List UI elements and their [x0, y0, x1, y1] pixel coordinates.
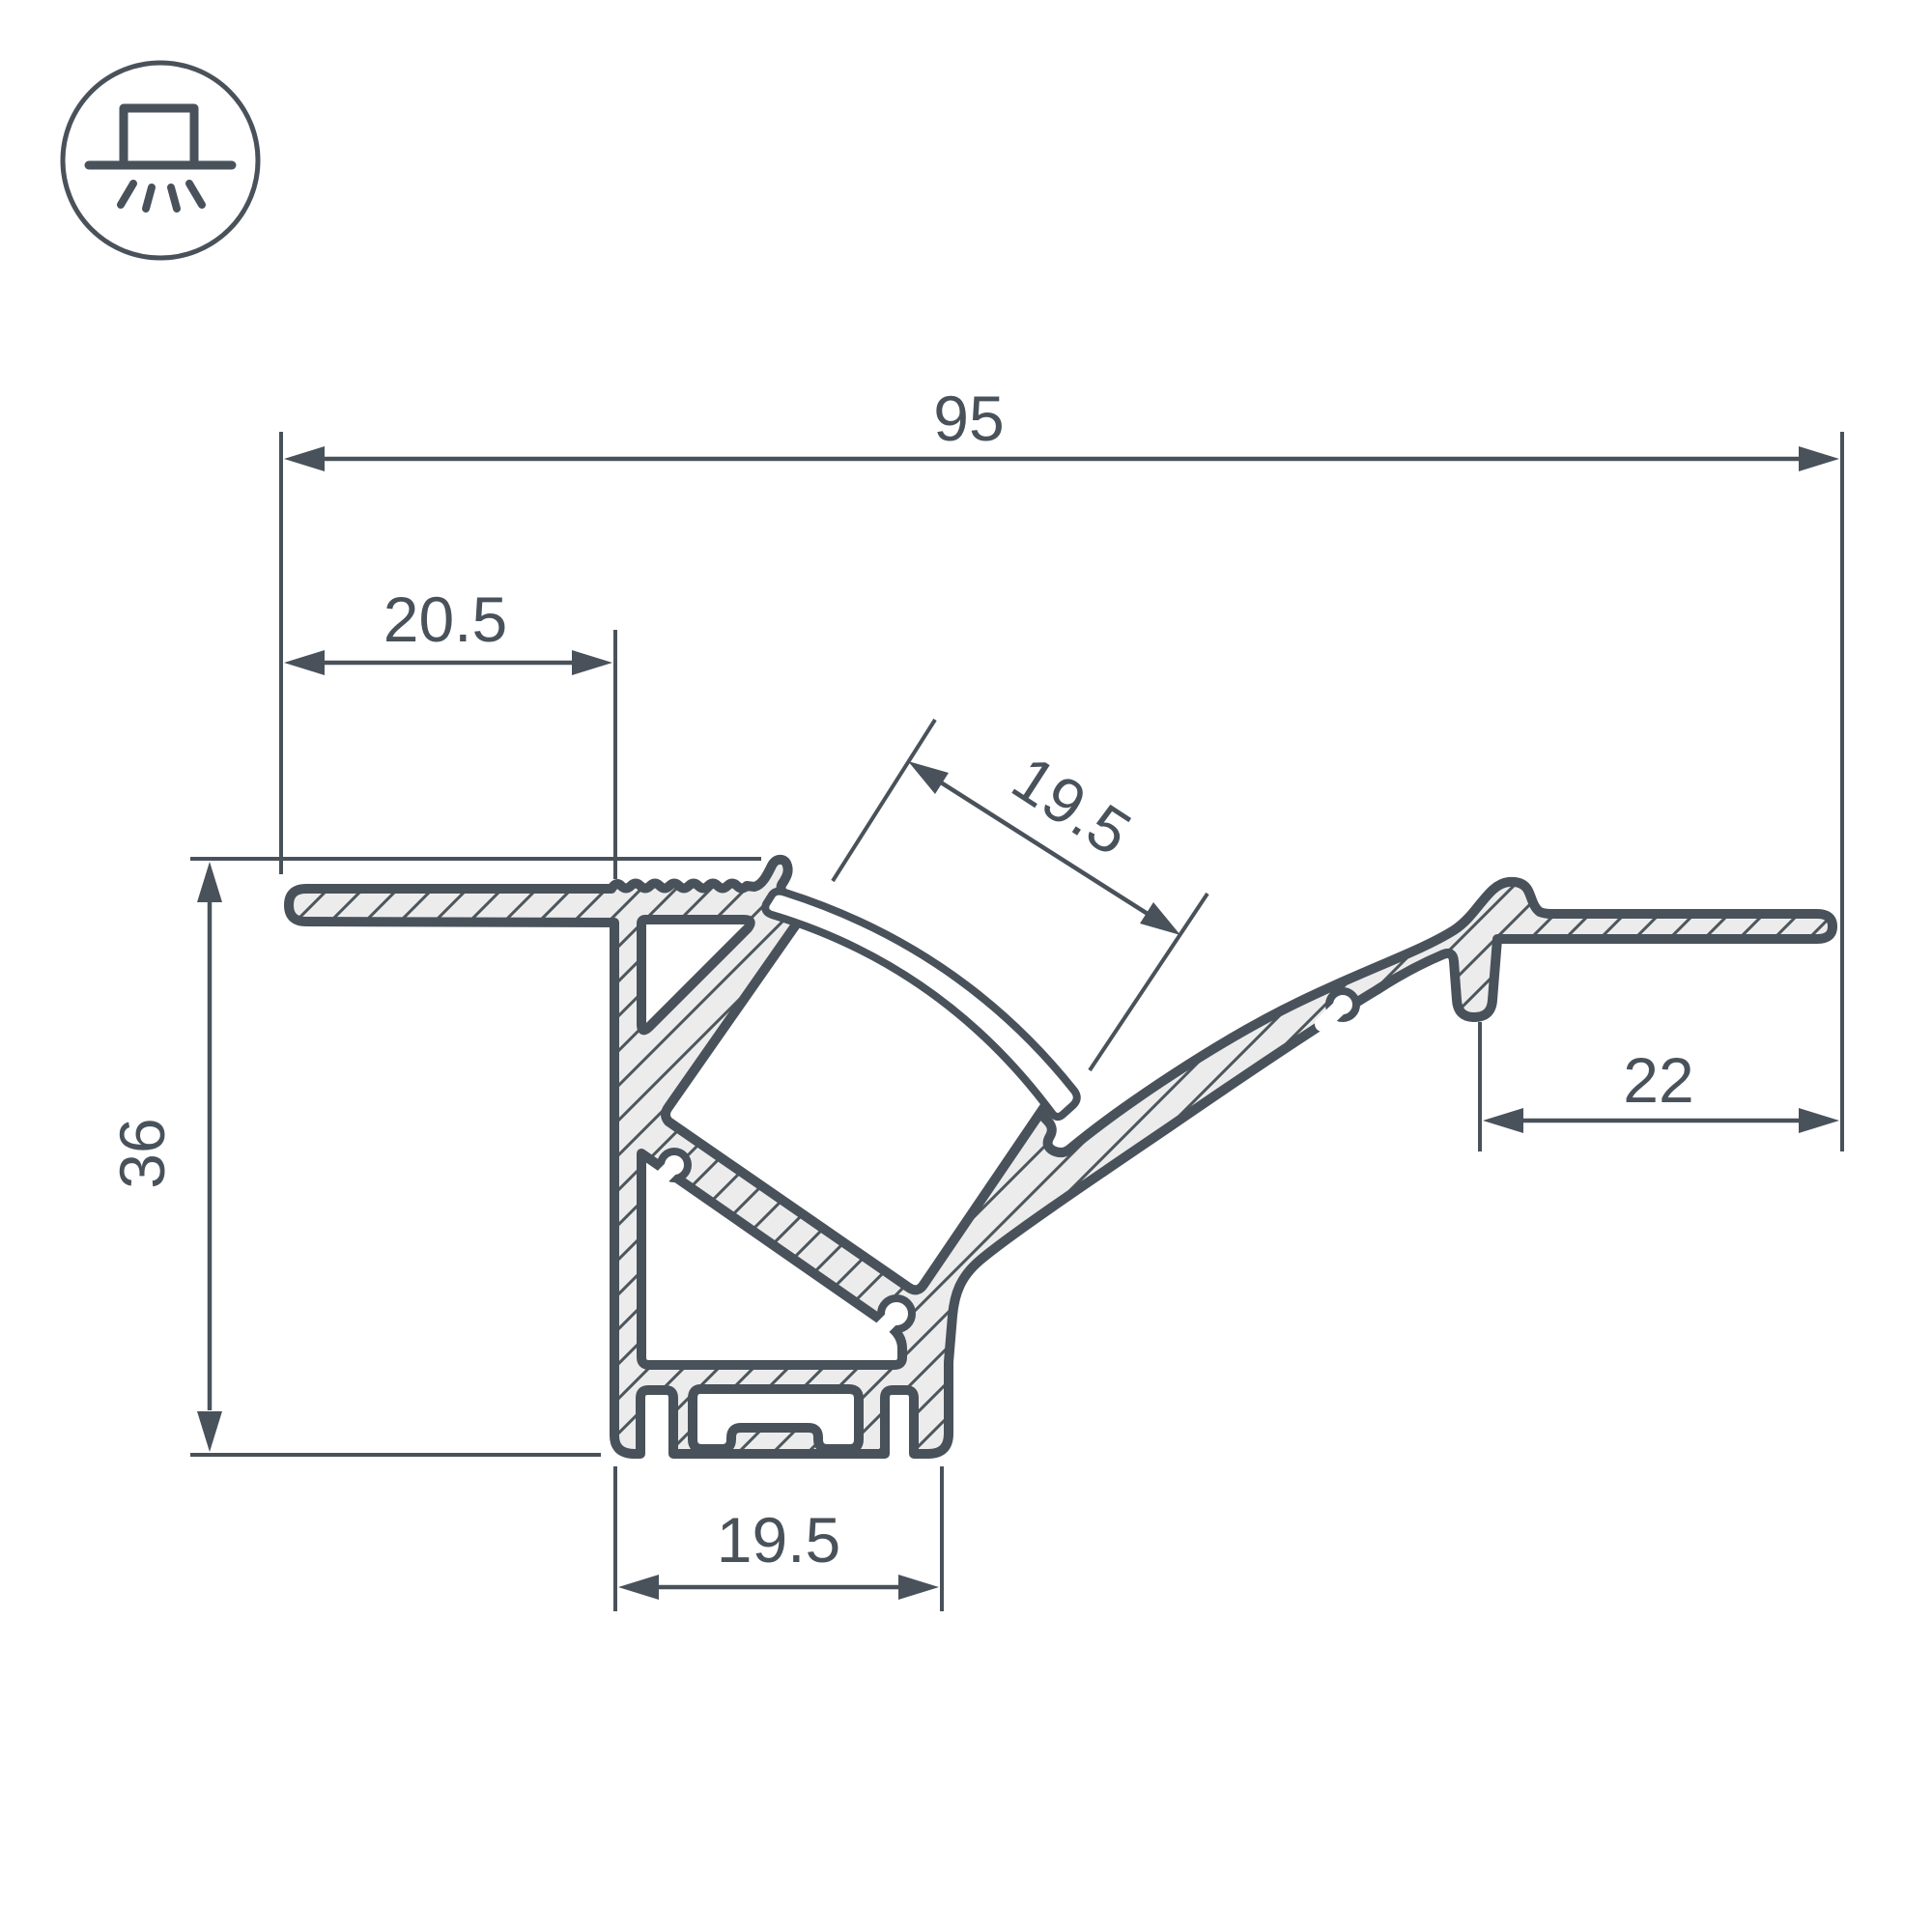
dim-diffuser-opening-label: 19.5	[1001, 742, 1144, 869]
dim-arrow	[1799, 1108, 1839, 1133]
clip-curl	[874, 1298, 912, 1336]
icon-light-rays	[121, 184, 202, 209]
diffuser-lens	[765, 892, 1077, 1117]
dim-overall-height-label: 36	[106, 1118, 178, 1188]
dim-arrow	[284, 650, 325, 675]
dim-overall-width: 95	[284, 383, 1839, 471]
dim-base-width-label: 19.5	[717, 1504, 840, 1576]
dim-overall-height: 36	[106, 862, 222, 1452]
dim-right-flange-label: 22	[1623, 1044, 1693, 1116]
icon-circle	[63, 63, 258, 258]
dim-arrow	[1140, 902, 1180, 935]
light-ray	[189, 184, 202, 205]
dim-left-flange: 20.5	[284, 583, 612, 675]
icon-fixture-box	[124, 108, 194, 165]
light-ray	[171, 187, 177, 209]
dim-base-width: 19.5	[618, 1504, 939, 1600]
light-ray	[121, 184, 133, 205]
light-ray	[146, 187, 152, 209]
dim-arrow	[908, 761, 949, 794]
dim-arrow	[572, 650, 612, 675]
profile-technical-drawing: 95 20.5 19.5 36 22	[0, 0, 1932, 1932]
recessed-light-icon	[63, 63, 258, 258]
extension-line	[833, 720, 935, 881]
dim-overall-width-label: 95	[933, 383, 1004, 454]
dim-arrow	[197, 862, 222, 902]
dim-arrow	[284, 446, 325, 471]
profile-body	[289, 860, 1833, 1454]
dim-diffuser-opening: 19.5	[908, 742, 1180, 935]
dim-left-flange-label: 20.5	[384, 583, 507, 655]
profile-cross-section	[289, 860, 1833, 1454]
dim-arrow	[1799, 446, 1839, 471]
drawing-svg: 95 20.5 19.5 36 22	[0, 0, 1932, 1932]
dim-right-flange: 22	[1483, 1044, 1839, 1133]
dim-arrow	[197, 1411, 222, 1452]
dim-arrow	[618, 1575, 659, 1600]
dim-arrow	[1483, 1108, 1523, 1133]
dim-arrow	[898, 1575, 939, 1600]
